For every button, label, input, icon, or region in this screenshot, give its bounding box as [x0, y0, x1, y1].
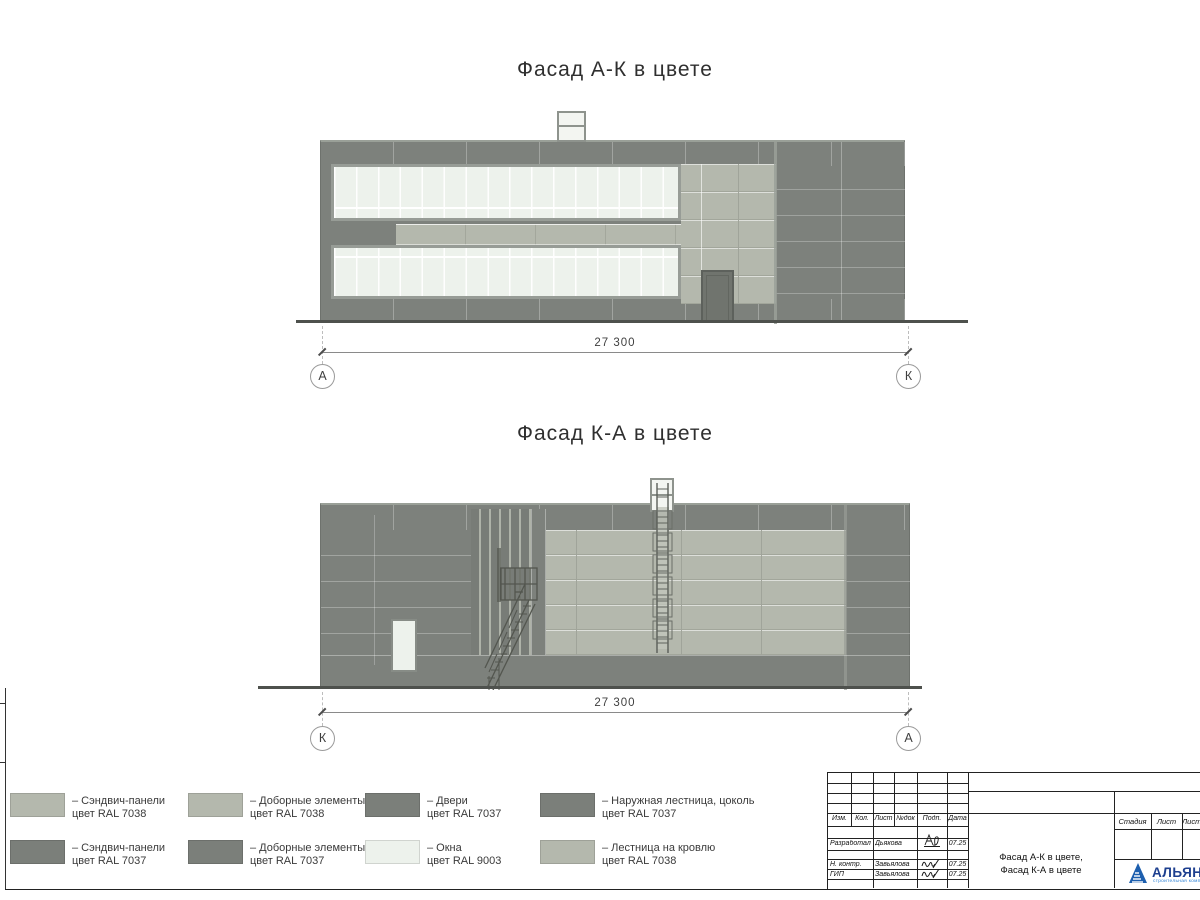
- transom-line: [334, 256, 678, 258]
- facade-a-k-title: Фасад А-К в цвете: [330, 58, 900, 82]
- axis-bubble-k: К: [310, 726, 335, 751]
- sig-name: Дьякова: [875, 840, 917, 847]
- dimension-line: [322, 352, 908, 353]
- legend-swatch: [365, 840, 420, 864]
- panel-joint: [841, 142, 842, 324]
- legend-swatch: [188, 793, 243, 817]
- signature-icon: [921, 859, 945, 869]
- rev-col-data: Дата: [947, 815, 968, 822]
- sig-date: 07.25: [947, 861, 968, 868]
- sig-date: 07.25: [947, 871, 968, 878]
- legend-label: – Наружная лестница, цокольцвет RAL 7037: [602, 795, 755, 821]
- ground-line: [258, 686, 922, 689]
- axis-bubble-k: К: [896, 364, 921, 389]
- legend-swatch: [188, 840, 243, 864]
- stamp-line: [917, 773, 918, 888]
- ground-line: [296, 320, 968, 323]
- sig-role: Разработал: [830, 840, 873, 847]
- legend-label: – Дверицвет RAL 7037: [427, 795, 501, 821]
- mullion-strip: [844, 505, 847, 690]
- facade-k-a-drawing: [320, 503, 910, 688]
- facade-a-k-drawing: [320, 140, 905, 322]
- panel-joint: [738, 164, 739, 304]
- stamp-line: [1114, 859, 1200, 860]
- frame-tick: [0, 703, 5, 704]
- legend-swatch: [10, 793, 65, 817]
- legend-label: – Сэндвич-панелицвет RAL 7038: [72, 795, 165, 821]
- panel-joint: [681, 530, 682, 655]
- stage-header: Стадия: [1114, 817, 1151, 826]
- ribbon-window-upper: [331, 164, 681, 221]
- company-logo-icon: [1128, 862, 1148, 884]
- dimension-value: 27 300: [330, 697, 900, 709]
- signature-icon: [921, 833, 945, 849]
- door-leaf: [706, 275, 729, 321]
- legend-label: – Сэндвич-панелицвет RAL 7037: [72, 842, 165, 868]
- rev-col-list: Лист: [873, 815, 894, 822]
- guard-bar: [559, 125, 584, 127]
- signature-icon: [921, 869, 945, 879]
- rev-col-podp: Подп.: [917, 815, 947, 822]
- frame-tick: [0, 762, 5, 763]
- sig-role: ГИП: [830, 871, 873, 878]
- frame-left-line: [5, 688, 6, 890]
- rev-col-ndok: №док: [894, 815, 917, 822]
- sig-name: Завьялова: [875, 871, 917, 878]
- legend-label: – Лестница на кровлюцвет RAL 7038: [602, 842, 715, 868]
- sig-name: Завьялова: [875, 861, 917, 868]
- roof-hatch-guard: [557, 111, 586, 142]
- legend-label: – Окнацвет RAL 9003: [427, 842, 501, 868]
- dimension-line: [322, 712, 908, 713]
- sig-role: Н. контр.: [830, 861, 873, 868]
- legend-label: – Доборные элементыцвет RAL 7037: [250, 842, 365, 868]
- dimension-value: 27 300: [330, 337, 900, 349]
- top-band-panels: [321, 142, 906, 166]
- legend-swatch: [10, 840, 65, 864]
- doc-title: Фасад А-К в цвете, Фасад К-А в цвете: [968, 813, 1114, 883]
- stamp-line: [828, 783, 968, 784]
- facade-k-a-title: Фасад К-А в цвете: [330, 422, 900, 446]
- right-dark-section: [846, 530, 911, 655]
- stamp-line: [968, 791, 1200, 792]
- company-logo-subtext: строительная компания: [1153, 879, 1200, 884]
- stamp-line: [873, 773, 874, 888]
- sheets-header: Листов: [1182, 817, 1200, 826]
- rev-col-izm: Изм.: [828, 815, 851, 822]
- roof-ladder: [651, 481, 673, 655]
- rev-col-kol: Кол.: [851, 815, 873, 822]
- interfloor-light-strip: [396, 224, 681, 245]
- sig-date: 07.25: [947, 840, 968, 847]
- legend-swatch: [365, 793, 420, 817]
- legend-swatch: [540, 793, 595, 817]
- stamp-line: [828, 803, 968, 804]
- entrance-door: [701, 270, 734, 323]
- extension-line: [322, 326, 323, 364]
- stamp-line: [828, 793, 968, 794]
- extension-line: [908, 326, 909, 364]
- mullion-strip: [774, 142, 777, 324]
- panel-joint: [576, 530, 577, 655]
- stamp-line: [828, 813, 968, 814]
- top-band-panels: [321, 505, 911, 530]
- drawing-sheet: { "facade1": { "title": "Фасад А-К в цве…: [0, 0, 1200, 900]
- stamp-line: [828, 869, 968, 870]
- axis-bubble-a: А: [310, 364, 335, 389]
- legend-swatch: [540, 840, 595, 864]
- panel-joint: [761, 530, 762, 655]
- legend-label: – Доборные элементыцвет RAL 7038: [250, 795, 365, 821]
- axis-bubble-a: А: [896, 726, 921, 751]
- ribbon-window-lower: [331, 245, 681, 299]
- sheet-header: Лист: [1151, 817, 1182, 826]
- stamp-line: [828, 826, 968, 827]
- stamp-line: [828, 850, 968, 851]
- stamp-line: [828, 879, 968, 880]
- title-block: Изм. Кол. Лист №док Подп. Дата Разработа…: [827, 772, 1200, 890]
- stamp-line: [828, 838, 968, 839]
- external-staircase: [469, 540, 551, 690]
- stamp-line: [1114, 829, 1200, 830]
- transom-line: [334, 207, 678, 209]
- panel-joint: [374, 515, 375, 665]
- company-logo-text: АЛЬЯНС: [1152, 865, 1200, 880]
- stamp-line: [1114, 791, 1115, 888]
- small-window: [391, 619, 417, 672]
- stamp-line: [828, 859, 968, 860]
